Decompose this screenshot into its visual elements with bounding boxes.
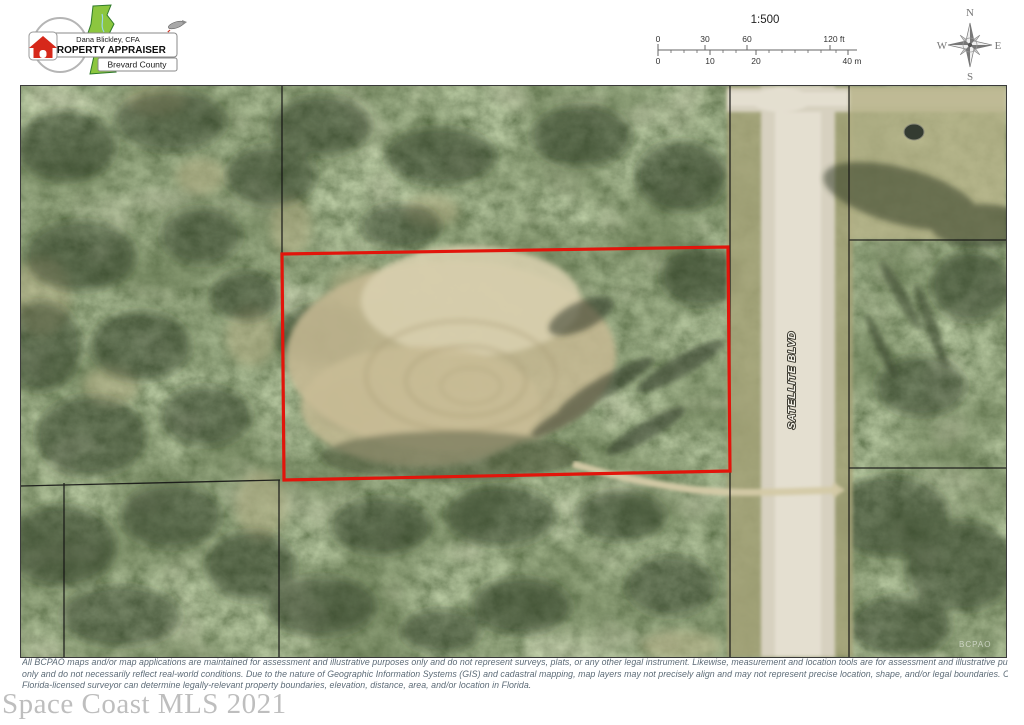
bcpao-watermark: BCPAO (959, 640, 991, 649)
compass-w: W (937, 40, 948, 52)
page: Dana Blickley, CFA PROPERTY APPRAISER Br… (0, 0, 1024, 725)
logo-rocket-icon (167, 20, 187, 31)
scale-ft-0: 0 (656, 34, 661, 44)
compass-e: E (995, 40, 1002, 52)
disclaimer: All BCPAO maps and/or map applications a… (22, 657, 1008, 692)
logo-title-text: PROPERTY APPRAISER (50, 45, 166, 56)
scale-m-40: 40 m (843, 56, 862, 66)
scale-m-10: 10 (705, 56, 715, 66)
disclaimer-line-1: All BCPAO maps and/or map applications a… (22, 657, 1008, 669)
road-label: SATELLITE BLVD (786, 331, 798, 430)
scale-ratio: 1:500 (650, 14, 880, 26)
compass-n: N (966, 7, 974, 19)
compass-rose-icon: N E S W (934, 3, 1006, 83)
mls-watermark: Space Coast MLS 2021 (2, 688, 287, 721)
map-image: SATELLITE BLVD BCPAO (20, 85, 1007, 658)
scale-ft-30: 30 (700, 34, 710, 44)
logo-owner-text: Dana Blickley, CFA (76, 35, 140, 44)
scale-m-0: 0 (656, 56, 661, 66)
appraiser-logo: Dana Blickley, CFA PROPERTY APPRAISER Br… (24, 4, 192, 78)
scale-bar: 0 30 60 120 ft 0 10 20 40 m (650, 30, 880, 68)
aerial-canvas: SATELLITE BLVD BCPAO (21, 86, 1006, 657)
compass-s: S (967, 71, 973, 83)
scale-m-20: 20 (751, 56, 761, 66)
scale-ft-60: 60 (742, 34, 752, 44)
logo-county-text: Brevard County (107, 60, 167, 70)
disclaimer-line-2: only and do not necessarily reflect real… (22, 669, 1008, 681)
pond (904, 124, 924, 140)
scale-ft-120: 120 ft (823, 34, 845, 44)
